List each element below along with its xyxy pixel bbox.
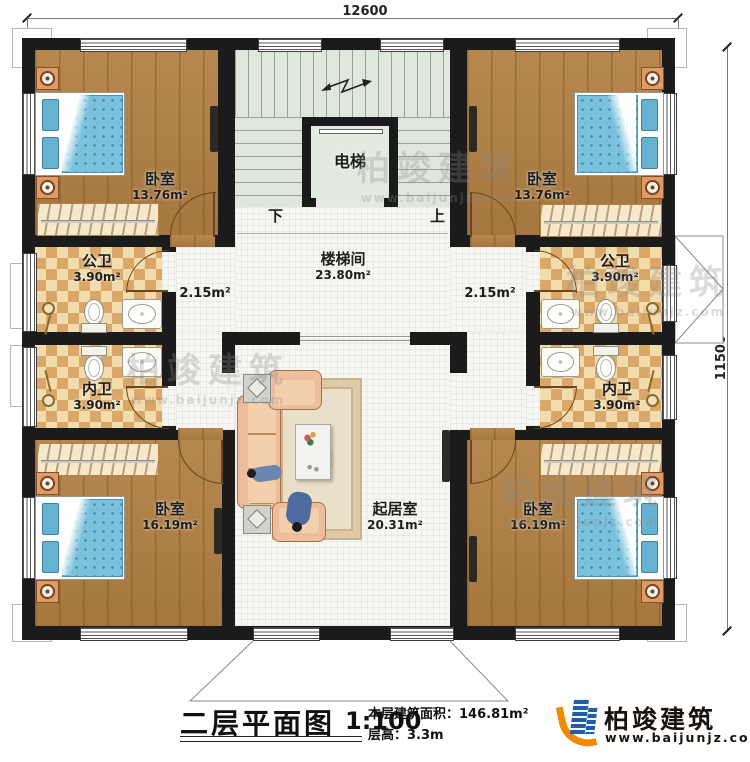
- toilet: [84, 299, 104, 325]
- tv: [214, 508, 222, 554]
- toilet: [596, 299, 616, 325]
- door-opening: [470, 235, 515, 247]
- door-opening: [170, 235, 215, 247]
- door-opening: [470, 428, 515, 440]
- nightstand: [36, 176, 59, 199]
- toilet-tank: [593, 323, 619, 333]
- window: [515, 38, 620, 52]
- corridor-right-area: 2.15m²: [445, 286, 535, 301]
- nightstand: [641, 67, 664, 90]
- corridor-left-area: 2.15m²: [160, 286, 250, 301]
- wall-stub: [235, 332, 300, 345]
- bed: [574, 92, 664, 176]
- shower-head: [42, 394, 55, 407]
- window: [515, 627, 620, 641]
- sink: [122, 347, 162, 377]
- window: [380, 38, 444, 52]
- elevator-opening: [316, 198, 384, 207]
- nightstand: [36, 67, 59, 90]
- tv: [469, 106, 477, 152]
- tv: [442, 430, 450, 482]
- sink: [122, 299, 162, 329]
- shower-head: [646, 394, 659, 407]
- window: [253, 627, 320, 641]
- toilet: [596, 355, 616, 381]
- floor-height-value: 3.3m: [407, 728, 444, 743]
- window: [390, 627, 454, 641]
- window: [22, 347, 37, 427]
- sofa: [237, 395, 281, 509]
- bed: [35, 496, 125, 580]
- bed: [35, 92, 125, 176]
- window: [80, 38, 187, 52]
- window: [80, 627, 188, 641]
- stair-flight-right: [398, 117, 450, 207]
- door-leaf: [470, 192, 472, 237]
- side-table-lamp: [243, 374, 271, 403]
- corridor-left-floor: [176, 332, 222, 430]
- elevator-door: [319, 129, 383, 134]
- corridor-right-floor: [467, 332, 526, 430]
- floor-height-line: 层高：3.3m: [368, 724, 444, 743]
- door-leaf: [221, 440, 223, 483]
- door-leaf: [470, 440, 472, 483]
- stair-flight-left: [235, 117, 302, 207]
- wardrobe: [37, 203, 159, 236]
- door-opening: [178, 428, 223, 440]
- door-leaf: [126, 386, 168, 388]
- threshold-line: [300, 336, 410, 341]
- window: [258, 38, 322, 52]
- wardrobe: [540, 204, 662, 237]
- window: [662, 355, 677, 420]
- armchair: [268, 370, 322, 410]
- floor-area-label: 本层建筑面积：: [368, 707, 459, 722]
- floor-height-label: 层高：: [368, 728, 407, 743]
- door-leaf: [213, 192, 215, 237]
- toilet: [84, 355, 104, 381]
- nightstand: [641, 176, 664, 199]
- logo-blue-tower: [585, 706, 597, 734]
- window: [662, 93, 677, 175]
- window: [22, 253, 37, 332]
- stair-direction-arrow: [318, 62, 382, 102]
- tv: [469, 536, 477, 582]
- stair-down-label: 下: [268, 205, 283, 226]
- door-leaf: [534, 386, 576, 388]
- wall-stub: [410, 332, 450, 345]
- stair-hall-floor: [235, 207, 450, 340]
- coffee-table: [295, 424, 331, 480]
- door-leaf: [534, 290, 576, 292]
- floor-plan-canvas: 12600 11500 电梯: [0, 0, 750, 762]
- tv: [210, 106, 218, 152]
- window: [662, 265, 677, 322]
- nightstand: [641, 580, 664, 603]
- window: [662, 497, 677, 579]
- sink: [541, 347, 580, 377]
- nightstand: [641, 472, 664, 495]
- title-underline: [180, 736, 362, 742]
- elevator-cab: [311, 126, 389, 198]
- brand-site: www.baijunjz.com: [605, 730, 750, 745]
- opening-corridor-left-living: [222, 373, 235, 430]
- floor-area-value: 146.81m²: [459, 707, 528, 722]
- nightstand: [36, 580, 59, 603]
- opening-corridor-right-living: [450, 373, 467, 430]
- stair-up-label: 上: [430, 205, 445, 226]
- person-head: [292, 522, 302, 532]
- nightstand: [36, 472, 59, 495]
- bed: [574, 496, 664, 580]
- side-table-lamp: [243, 505, 271, 534]
- person-head: [247, 469, 256, 478]
- stair-landing-edge: [237, 233, 448, 234]
- floor-area-line: 本层建筑面积：146.81m²: [368, 703, 528, 722]
- brand-logo-icon: [558, 694, 598, 746]
- sink: [541, 299, 580, 329]
- toilet-tank: [81, 323, 107, 333]
